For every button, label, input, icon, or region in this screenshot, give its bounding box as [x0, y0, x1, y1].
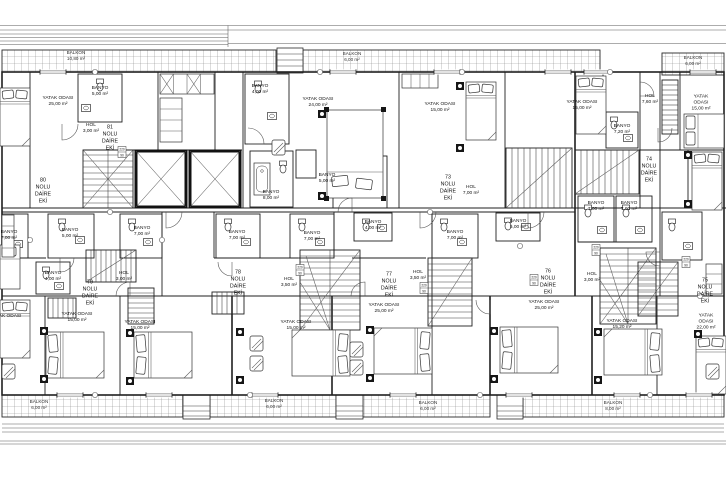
bed-master	[324, 107, 386, 201]
wardrobe-dressing	[160, 74, 214, 94]
label-bathroom-7: BANYO 7,00 m²	[304, 231, 321, 243]
bed	[292, 330, 350, 376]
label-bathroom-7: BANYO 7,00 m²	[134, 226, 151, 238]
staircase-73	[506, 148, 572, 208]
label-unit-79: 79 NOLU DAİRE EKİ	[82, 279, 98, 307]
armchair	[272, 140, 285, 155]
armchair	[350, 342, 363, 357]
label-bedroom-22: YATAK ODASI 22,00 m²	[696, 314, 716, 333]
bed	[134, 332, 192, 378]
closet-small	[296, 150, 316, 178]
label-balcony-bottom-mid-2: BALKON 6,00 m²	[419, 400, 438, 412]
elevator-shaft-1	[136, 151, 186, 207]
label-bedroom-24: YATAK ODASI 24,00 m²	[303, 97, 334, 109]
label-bedroom-partial: YATAK ODASI	[0, 314, 21, 320]
label-bathroom-5: BANYO 5,00 m²	[510, 219, 527, 231]
label-bedroom-15: YATAK ODASI 15,00 m²	[689, 95, 714, 114]
label-balcony-top-right: BALKON 6,00 m²	[684, 55, 703, 67]
label-bathroom-4: BANYO 4,00 m²	[45, 271, 62, 283]
stair-landing-bottom-2	[336, 395, 363, 419]
bed	[374, 328, 432, 374]
bed	[46, 332, 104, 378]
toilet-icon	[280, 161, 287, 173]
plan-canvas: 220 90	[0, 0, 726, 485]
balcony-strip-top	[2, 48, 724, 75]
label-hall-3: HOL 3,00 m²	[584, 272, 600, 284]
floor-plan-drawing: 220 90	[0, 0, 726, 485]
label-unit-74: 74 NOLU DAİRE EKİ	[641, 156, 657, 184]
elevator-shaft-2	[190, 151, 240, 207]
bed	[604, 329, 662, 375]
label-unit-78: 78 NOLU DAİRE EKİ	[230, 269, 246, 297]
label-bedroom-15: YATAK ODASI 15,00 m²	[62, 312, 93, 324]
label-bathroom-4: BANYO 4,00 m²	[365, 220, 382, 232]
label-bedroom-15: YATAK ODASI 15,00 m²	[425, 102, 456, 114]
staircase-core	[83, 150, 133, 208]
stair-landing-bottom-3	[497, 395, 523, 419]
label-bathroom-7: BANYO 7,00 m²	[447, 230, 464, 242]
armchair	[706, 364, 719, 379]
label-unit-76: 76 NOLU DAİRE EKİ	[540, 268, 556, 296]
label-balcony-bottom-right: BALKON 8,00 m²	[604, 400, 623, 412]
armchair	[250, 336, 263, 351]
label-bathroom-5: BANYO 5,00 m²	[92, 86, 109, 98]
staircase-74	[575, 150, 639, 194]
stair-landing-bottom-1	[183, 395, 210, 419]
label-hall-7: HOL 7,00 m²	[463, 185, 479, 197]
label-bedroom-25: YATAK ODASI 25,00 m²	[369, 303, 400, 315]
label-bedroom-25: YATAK ODASI 25,00 m²	[43, 96, 74, 108]
bed	[466, 82, 496, 140]
label-bedroom-15: YATAK ODASI 15,00 m²	[125, 320, 156, 332]
armchair	[350, 360, 363, 375]
label-unit-77: 77 NOLU DAİRE EKİ	[381, 271, 397, 299]
label-unit-73: 73 NOLU DAİRE EKİ	[440, 174, 456, 202]
label-hall-3: HOL 3,00 m²	[83, 123, 99, 135]
bed	[692, 152, 722, 210]
shelf-unit	[160, 98, 182, 142]
label-bedroom-25: YATAK ODASI 25,00 m²	[529, 300, 560, 312]
label-unit-81: 81 NOLU DAİRE EKİ	[102, 124, 118, 152]
bed	[0, 88, 30, 146]
label-balcony-top-mid: BALKON 6,00 m²	[343, 51, 362, 63]
bed	[500, 327, 558, 373]
sink-icon	[82, 105, 91, 112]
label-bedroom-15: YATAK ODASI 15,00 m²	[281, 320, 312, 332]
stair-landing-top	[277, 48, 303, 73]
label-balcony-bottom-left: BALKON 6,00 m²	[30, 399, 49, 411]
label-hall-7-6: HOL 7,60 m²	[642, 94, 658, 106]
staircase-78	[300, 250, 360, 330]
bed-corner-tr	[684, 114, 724, 148]
roof-eave-lines-bottom	[0, 424, 726, 444]
staircase-74-upper-flight	[662, 80, 678, 134]
label-bathroom-4: BANYO 4,00 m²	[252, 84, 269, 96]
armchair	[2, 364, 15, 379]
label-bathroom-5: BANYO 5,00 m²	[62, 228, 79, 240]
armchair	[250, 356, 263, 371]
label-bathroom-7: BANYO 7,00 m²	[621, 201, 638, 213]
roof-eave-lines-top	[0, 26, 726, 48]
sink-icon	[268, 113, 277, 120]
label-bathroom-7: BANYO 7,00 m²	[588, 201, 605, 213]
label-bathroom-8: BANYO 8,00 m²	[263, 190, 280, 202]
staircase-75	[638, 262, 678, 316]
label-hall-3-5: HOL 3,50 m²	[281, 277, 297, 289]
label-unit-80: 80 NOLU DAİRE EKİ	[35, 177, 51, 205]
label-unit-75: 75 NOLU DAİRE EKİ	[697, 277, 713, 305]
label-bedroom-15-2: YATAK ODASI 15,20 m²	[607, 319, 638, 331]
label-bathroom-7: BANYO 7,00 m²	[1, 230, 18, 242]
label-balcony-bottom-mid-1: BALKON 6,00 m²	[265, 398, 284, 410]
bed	[0, 300, 30, 358]
label-hall-3: HOL 3,00 m²	[116, 271, 132, 283]
wardrobe-73	[402, 74, 438, 88]
label-bedroom-15: YATAK ODASI 15,00 m²	[567, 100, 598, 112]
staircase-77	[428, 258, 472, 326]
label-bathroom-5: BANYO 5,00 m²	[319, 173, 336, 185]
label-bathroom-7-2: BANYO 7,20 m²	[614, 124, 631, 136]
label-bathroom-7: BANYO 7,00 m²	[229, 230, 246, 242]
label-balcony-top-left: BALKON 10,80 m²	[67, 50, 86, 62]
label-hall-3-5: HOL 3,50 m²	[410, 270, 426, 282]
